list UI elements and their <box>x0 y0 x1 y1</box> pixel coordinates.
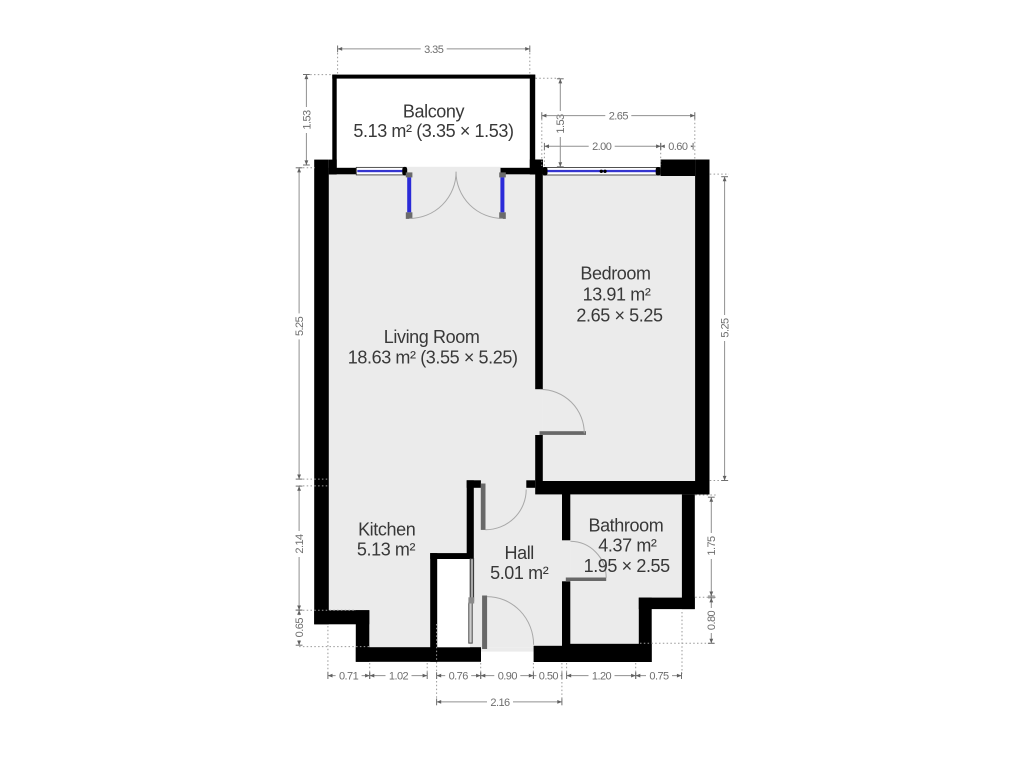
svg-text:13.91 m²: 13.91 m² <box>583 284 651 304</box>
svg-text:0.90: 0.90 <box>498 671 518 683</box>
svg-text:Hall: Hall <box>504 543 533 563</box>
svg-text:Bedroom: Bedroom <box>580 263 650 283</box>
svg-text:1.53: 1.53 <box>301 110 313 130</box>
svg-text:5.13 m²: 5.13 m² <box>357 540 416 560</box>
svg-text:2.65: 2.65 <box>609 111 629 123</box>
svg-text:0.60: 0.60 <box>668 141 688 153</box>
svg-text:5.25: 5.25 <box>720 318 732 338</box>
svg-text:Balcony: Balcony <box>403 102 465 122</box>
svg-text:1.02: 1.02 <box>389 671 409 683</box>
svg-text:Kitchen: Kitchen <box>358 519 415 539</box>
svg-text:0.75: 0.75 <box>649 671 669 683</box>
svg-text:2.00: 2.00 <box>592 141 612 153</box>
svg-text:5.01 m²: 5.01 m² <box>490 563 549 583</box>
svg-text:0.71: 0.71 <box>339 671 359 683</box>
svg-text:5.13 m² (3.35 × 1.53): 5.13 m² (3.35 × 1.53) <box>353 121 513 141</box>
svg-text:1.75: 1.75 <box>706 536 718 556</box>
svg-text:0.65: 0.65 <box>294 618 306 638</box>
svg-text:0.76: 0.76 <box>449 671 469 683</box>
svg-text:1.95 × 2.55: 1.95 × 2.55 <box>584 556 671 576</box>
svg-text:18.63 m² (3.55 × 5.25): 18.63 m² (3.55 × 5.25) <box>348 348 518 368</box>
svg-text:5.25: 5.25 <box>294 316 306 336</box>
svg-text:3.35: 3.35 <box>424 44 444 56</box>
svg-text:2.65 × 5.25: 2.65 × 5.25 <box>576 305 663 325</box>
svg-text:4.37 m²: 4.37 m² <box>598 536 657 556</box>
svg-text:2.16: 2.16 <box>490 697 510 709</box>
svg-text:Living Room: Living Room <box>384 327 480 347</box>
svg-text:1.20: 1.20 <box>592 671 612 683</box>
svg-text:0.80: 0.80 <box>706 610 718 630</box>
svg-text:1.53: 1.53 <box>555 114 567 134</box>
svg-text:Bathroom: Bathroom <box>588 516 663 536</box>
svg-text:2.14: 2.14 <box>294 534 306 554</box>
svg-text:0.50: 0.50 <box>539 671 559 683</box>
